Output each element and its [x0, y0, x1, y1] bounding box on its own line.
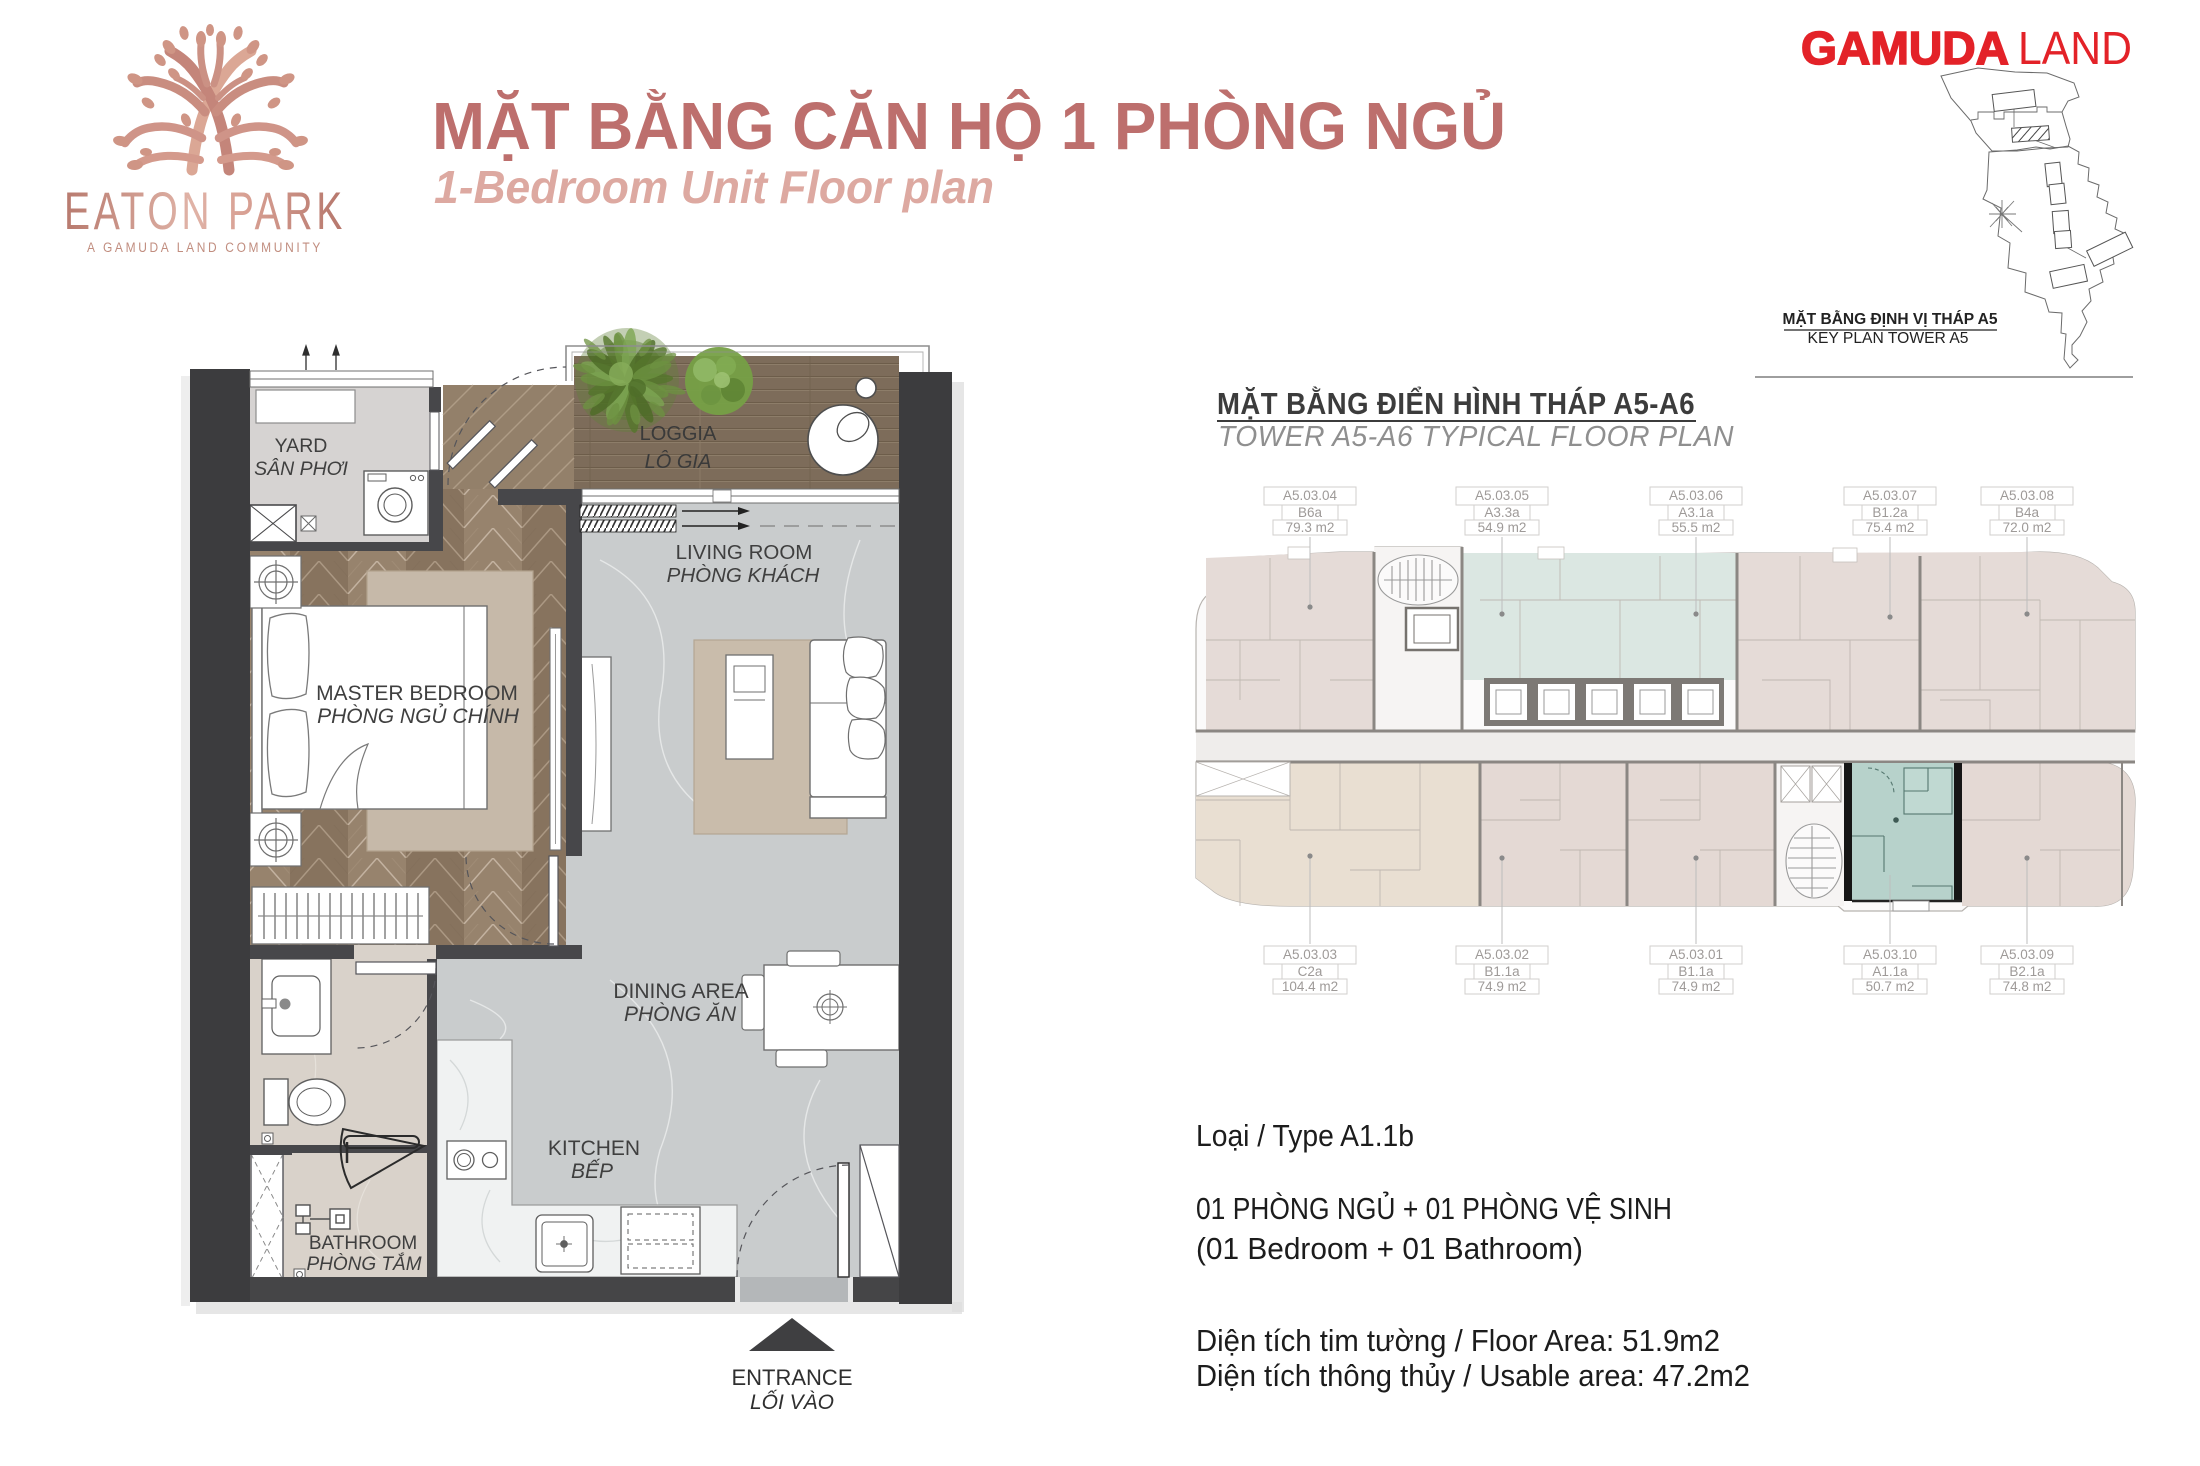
svg-text:A1.1a: A1.1a [1872, 964, 1908, 979]
svg-text:Diện tích thông thủy / Usable: Diện tích thông thủy / Usable area: 47.2… [1196, 1358, 1750, 1393]
svg-text:A GAMUDA LAND COMMUNITY: A GAMUDA LAND COMMUNITY [87, 240, 323, 255]
svg-text:54.9 m2: 54.9 m2 [1478, 520, 1527, 535]
svg-text:75.4 m2: 75.4 m2 [1866, 520, 1915, 535]
svg-text:MASTER BEDROOM: MASTER BEDROOM [316, 682, 518, 705]
svg-text:A5.03.10: A5.03.10 [1863, 947, 1917, 962]
svg-text:Loại / Type A1.1b: Loại / Type A1.1b [1196, 1118, 1414, 1153]
svg-text:YARD: YARD [275, 435, 328, 457]
svg-text:A3.3a: A3.3a [1484, 505, 1520, 520]
svg-text:MẶT BẰNG ĐIỂN HÌNH THÁP A5-A6: MẶT BẰNG ĐIỂN HÌNH THÁP A5-A6 [1217, 386, 1695, 421]
svg-text:GAMUDA: GAMUDA [1801, 22, 2009, 74]
svg-text:PHÒNG TẮM: PHÒNG TẮM [306, 1253, 421, 1275]
svg-text:A5.03.02: A5.03.02 [1475, 947, 1529, 962]
svg-text:A5.03.08: A5.03.08 [2000, 488, 2054, 503]
svg-text:74.8 m2: 74.8 m2 [2003, 979, 2052, 994]
svg-text:B2.1a: B2.1a [2009, 964, 2045, 979]
svg-text:(01 Bedroom + 01 Bathroom): (01 Bedroom + 01 Bathroom) [1196, 1231, 1583, 1266]
svg-text:SÂN PHƠI: SÂN PHƠI [254, 457, 348, 480]
svg-text:1-Bedroom Unit Floor plan: 1-Bedroom Unit Floor plan [434, 161, 994, 213]
svg-text:LIVING ROOM: LIVING ROOM [676, 541, 813, 564]
svg-text:B4a: B4a [2015, 505, 2040, 520]
svg-text:EATON PARK: EATON PARK [64, 182, 346, 241]
svg-text:74.9 m2: 74.9 m2 [1672, 979, 1721, 994]
svg-text:KEY PLAN TOWER A5: KEY PLAN TOWER A5 [1808, 330, 1969, 347]
svg-text:A5.03.04: A5.03.04 [1283, 488, 1338, 503]
svg-text:TOWER A5-A6 TYPICAL FLOOR PLAN: TOWER A5-A6 TYPICAL FLOOR PLAN [1218, 421, 1734, 453]
svg-text:79.3 m2: 79.3 m2 [1286, 520, 1335, 535]
svg-text:BẾP: BẾP [571, 1159, 613, 1183]
svg-text:PHÒNG ĂN: PHÒNG ĂN [624, 1003, 737, 1026]
svg-text:PHÒNG NGỦ CHÍNH: PHÒNG NGỦ CHÍNH [317, 704, 520, 728]
svg-text:MẶT BẰNG ĐỊNH VỊ THÁP A5: MẶT BẰNG ĐỊNH VỊ THÁP A5 [1783, 310, 1998, 328]
svg-text:50.7 m2: 50.7 m2 [1866, 979, 1915, 994]
svg-text:DINING AREA: DINING AREA [613, 980, 748, 1003]
svg-text:B1.1a: B1.1a [1484, 964, 1520, 979]
svg-text:A5.03.03: A5.03.03 [1283, 947, 1337, 962]
svg-text:ENTRANCE: ENTRANCE [731, 1365, 852, 1390]
svg-text:C2a: C2a [1298, 964, 1323, 979]
svg-text:PHÒNG KHÁCH: PHÒNG KHÁCH [667, 564, 820, 587]
svg-text:B1.1a: B1.1a [1678, 964, 1714, 979]
svg-text:LÔ GIA: LÔ GIA [645, 450, 712, 473]
svg-text:MẶT BẰNG CĂN HỘ 1 PHÒNG NGỦ: MẶT BẰNG CĂN HỘ 1 PHÒNG NGỦ [432, 89, 1506, 164]
svg-text:01 PHÒNG NGỦ + 01 PHÒNG VỆ SIN: 01 PHÒNG NGỦ + 01 PHÒNG VỆ SINH [1196, 1190, 1672, 1226]
svg-text:A5.03.09: A5.03.09 [2000, 947, 2054, 962]
svg-text:LAND: LAND [2018, 22, 2132, 74]
svg-text:B1.2a: B1.2a [1872, 505, 1908, 520]
svg-text:LOGGIA: LOGGIA [640, 423, 717, 445]
svg-text:A5.03.05: A5.03.05 [1475, 488, 1529, 503]
svg-text:Diện tích tim tường / Floor Ar: Diện tích tim tường / Floor Area: 51.9m2 [1196, 1323, 1720, 1358]
svg-text:72.0 m2: 72.0 m2 [2003, 520, 2052, 535]
svg-text:LỐI VÀO: LỐI VÀO [750, 1390, 834, 1414]
svg-text:A3.1a: A3.1a [1678, 505, 1714, 520]
svg-text:A5.03.01: A5.03.01 [1669, 947, 1723, 962]
svg-text:B6a: B6a [1298, 505, 1323, 520]
svg-text:74.9 m2: 74.9 m2 [1478, 979, 1527, 994]
svg-text:104.4 m2: 104.4 m2 [1282, 979, 1338, 994]
svg-text:55.5 m2: 55.5 m2 [1672, 520, 1721, 535]
svg-text:A5.03.06: A5.03.06 [1669, 488, 1723, 503]
svg-text:KITCHEN: KITCHEN [548, 1137, 640, 1160]
svg-text:BATHROOM: BATHROOM [309, 1233, 417, 1254]
svg-text:A5.03.07: A5.03.07 [1863, 488, 1917, 503]
